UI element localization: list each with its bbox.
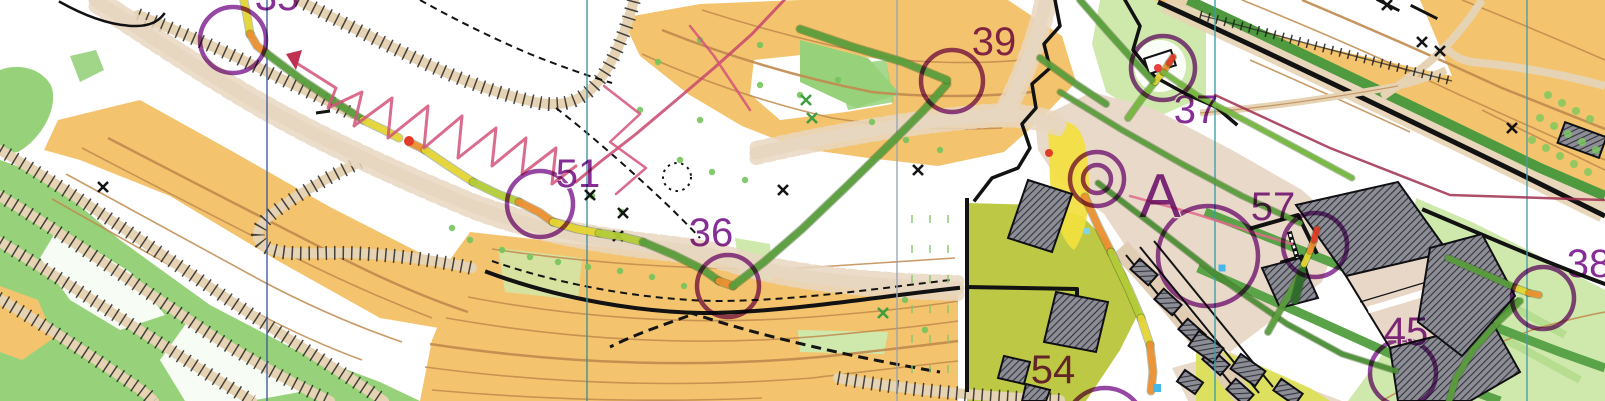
- control-number-51: 51: [556, 152, 601, 196]
- tree-dot: [585, 264, 591, 270]
- orchard-dot: [1572, 107, 1580, 115]
- orchard-dot: [1542, 144, 1550, 152]
- gps-marker-dot: [1045, 149, 1053, 157]
- gps-track-segment: [1314, 229, 1317, 240]
- control-number-45: 45: [1384, 310, 1429, 354]
- gps-marker-dot: [1154, 64, 1162, 72]
- control-number-57: 57: [1251, 185, 1296, 229]
- tree-dot: [677, 157, 683, 163]
- tree-dot: [903, 137, 909, 143]
- gps-track-segment: [1169, 57, 1173, 63]
- orienteering-map[interactable]: 353951363757453854A: [0, 0, 1605, 401]
- finish-label: A: [1139, 162, 1181, 231]
- tree-dot: [527, 254, 533, 260]
- control-number-36: 36: [689, 211, 734, 255]
- orchard-dot: [1558, 99, 1566, 107]
- tree-dot: [869, 119, 875, 125]
- orchard-dot: [1578, 138, 1586, 146]
- orchard-dot: [1584, 168, 1592, 176]
- tree-dot: [742, 177, 748, 183]
- gps-track-segment: [1529, 293, 1539, 295]
- orchard-dot: [1570, 160, 1578, 168]
- orchard-dot: [1544, 91, 1552, 99]
- orchard-dot: [1550, 122, 1558, 130]
- tree-dot: [555, 259, 561, 265]
- orchard-dot: [1528, 136, 1536, 144]
- control-number-37: 37: [1174, 88, 1219, 132]
- tree-dot: [467, 237, 473, 243]
- tree-dot: [709, 169, 715, 175]
- tree-dot: [449, 225, 455, 231]
- gps-track-segment: [1150, 345, 1153, 391]
- tree-dot: [697, 117, 703, 123]
- orchard-dot: [1586, 115, 1594, 123]
- control-number-39: 39: [972, 20, 1017, 64]
- tree-dot: [499, 247, 505, 253]
- tree-dot: [681, 283, 687, 289]
- tree-dot: [922, 327, 928, 333]
- orchard-dot: [1592, 146, 1600, 154]
- tree-dot: [617, 268, 623, 274]
- gps-marker-square: [1219, 265, 1226, 272]
- control-number-54: 54: [1031, 348, 1076, 392]
- orchard-dot: [1564, 130, 1572, 138]
- gps-marker-square: [1153, 384, 1161, 392]
- tree-dot: [902, 297, 908, 303]
- tree-dot: [757, 82, 763, 88]
- tree-dot: [649, 274, 655, 280]
- tree-dot: [937, 147, 943, 153]
- control-number-38: 38: [1567, 242, 1605, 286]
- tree-dot: [835, 77, 841, 83]
- gps-marker-dot: [404, 136, 414, 146]
- tree-dot: [655, 59, 661, 65]
- tree-dot: [757, 42, 763, 48]
- gps-marker-square: [1084, 228, 1090, 234]
- orchard-dot: [1536, 114, 1544, 122]
- orchard-dot: [1556, 152, 1564, 160]
- map-canvas: 353951363757453854A: [0, 0, 1605, 401]
- control-number-35: 35: [255, 0, 300, 19]
